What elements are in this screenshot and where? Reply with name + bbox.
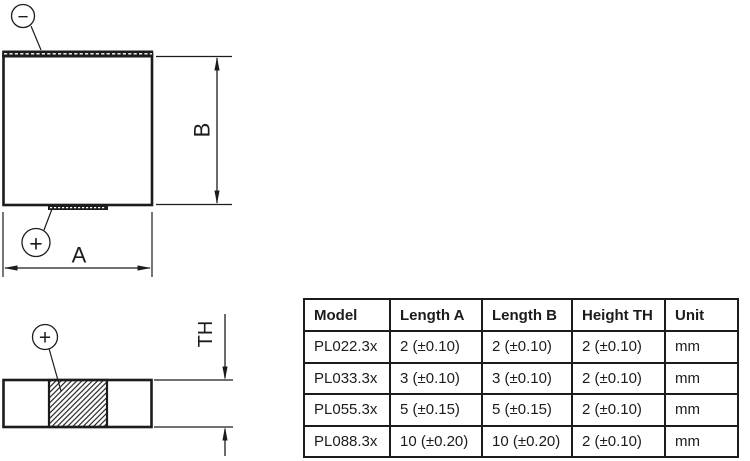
- column-header-unit: Unit: [665, 299, 738, 331]
- dimension-b-label: B: [190, 123, 215, 138]
- table-row: PL088.3x 10 (±0.20) 10 (±0.20) 2 (±0.10)…: [304, 426, 738, 458]
- length-b-cell: 2 (±0.10): [482, 331, 572, 363]
- arrowhead-right-icon: [138, 265, 152, 270]
- plus-terminal-label-side: +: [39, 327, 51, 350]
- dimensions-table: Model Length A Length B Height TH Unit P…: [303, 298, 739, 458]
- plus-leader-line-front: [44, 209, 52, 230]
- model-cell: PL022.3x: [304, 331, 390, 363]
- minus-terminal-label: −: [17, 7, 28, 28]
- minus-leader-line: [31, 26, 41, 50]
- length-a-cell: 3 (±0.10): [390, 363, 482, 395]
- arrowhead-up-icon: [222, 427, 227, 441]
- unit-cell: mm: [665, 363, 738, 395]
- model-cell: PL088.3x: [304, 426, 390, 458]
- bottom-electrode: [48, 204, 108, 210]
- side-view: + TH: [4, 314, 234, 456]
- ceramic-hatched-section: [49, 380, 107, 427]
- table-header-row: Model Length A Length B Height TH Unit: [304, 299, 738, 331]
- length-b-cell: 3 (±0.10): [482, 363, 572, 395]
- dimension-th: TH: [154, 314, 233, 456]
- dimension-th-label: TH: [195, 321, 217, 348]
- model-cell: PL033.3x: [304, 363, 390, 395]
- table-row: PL033.3x 3 (±0.10) 3 (±0.10) 2 (±0.10) m…: [304, 363, 738, 395]
- column-header-model: Model: [304, 299, 390, 331]
- unit-cell: mm: [665, 331, 738, 363]
- top-electrode: [2, 51, 153, 58]
- plus-terminal-label-front: +: [29, 231, 42, 257]
- unit-cell: mm: [665, 394, 738, 426]
- piezo-datasheet-page: − + B A: [0, 0, 750, 461]
- length-b-cell: 10 (±0.20): [482, 426, 572, 458]
- arrowhead-left-icon: [4, 265, 18, 270]
- arrowhead-up-icon: [214, 57, 219, 71]
- arrowhead-down-icon: [214, 191, 219, 205]
- height-th-cell: 2 (±0.10): [572, 331, 665, 363]
- length-b-cell: 5 (±0.15): [482, 394, 572, 426]
- model-cell: PL055.3x: [304, 394, 390, 426]
- length-a-cell: 10 (±0.20): [390, 426, 482, 458]
- dimension-a-label: A: [72, 243, 87, 268]
- height-th-cell: 2 (±0.10): [572, 426, 665, 458]
- front-view-body: [4, 54, 153, 205]
- table-row: PL055.3x 5 (±0.15) 5 (±0.15) 2 (±0.10) m…: [304, 394, 738, 426]
- height-th-cell: 2 (±0.10): [572, 394, 665, 426]
- length-a-cell: 2 (±0.10): [390, 331, 482, 363]
- arrowhead-down-icon: [222, 367, 227, 381]
- front-view: − + B A: [2, 5, 232, 278]
- height-th-cell: 2 (±0.10): [572, 363, 665, 395]
- column-header-height-th: Height TH: [572, 299, 665, 331]
- unit-cell: mm: [665, 426, 738, 458]
- length-a-cell: 5 (±0.15): [390, 394, 482, 426]
- column-header-length-a: Length A: [390, 299, 482, 331]
- table-row: PL022.3x 2 (±0.10) 2 (±0.10) 2 (±0.10) m…: [304, 331, 738, 363]
- dimension-b: B: [156, 57, 232, 205]
- column-header-length-b: Length B: [482, 299, 572, 331]
